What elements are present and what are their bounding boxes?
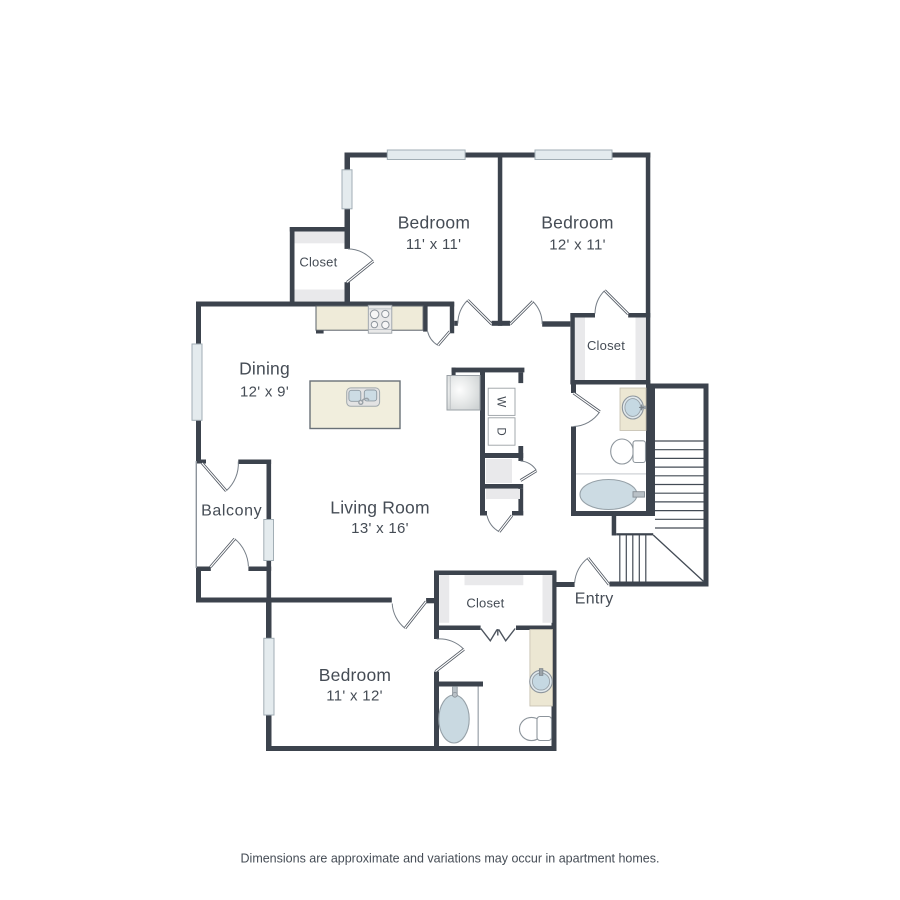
svg-text:12' x 9': 12' x 9' xyxy=(240,384,289,401)
svg-text:Bedroom: Bedroom xyxy=(541,213,613,233)
svg-text:Closet: Closet xyxy=(587,338,625,353)
svg-text:Closet: Closet xyxy=(299,255,337,270)
svg-text:13' x 16': 13' x 16' xyxy=(351,520,409,537)
svg-text:Living Room: Living Room xyxy=(330,498,429,518)
svg-text:Dimensions are approximate and: Dimensions are approximate and variation… xyxy=(241,852,660,866)
svg-text:Balcony: Balcony xyxy=(201,503,262,520)
svg-text:11' x 11': 11' x 11' xyxy=(406,236,461,253)
svg-text:Closet: Closet xyxy=(466,595,504,610)
svg-text:Bedroom: Bedroom xyxy=(398,213,470,233)
svg-text:Entry: Entry xyxy=(575,591,614,608)
svg-text:Bedroom: Bedroom xyxy=(319,665,391,685)
svg-text:W: W xyxy=(495,396,507,407)
svg-text:Dining: Dining xyxy=(239,359,290,379)
svg-text:12' x 11': 12' x 11' xyxy=(549,237,606,254)
svg-text:D: D xyxy=(495,427,507,435)
svg-text:11' x 12': 11' x 12' xyxy=(326,688,383,705)
